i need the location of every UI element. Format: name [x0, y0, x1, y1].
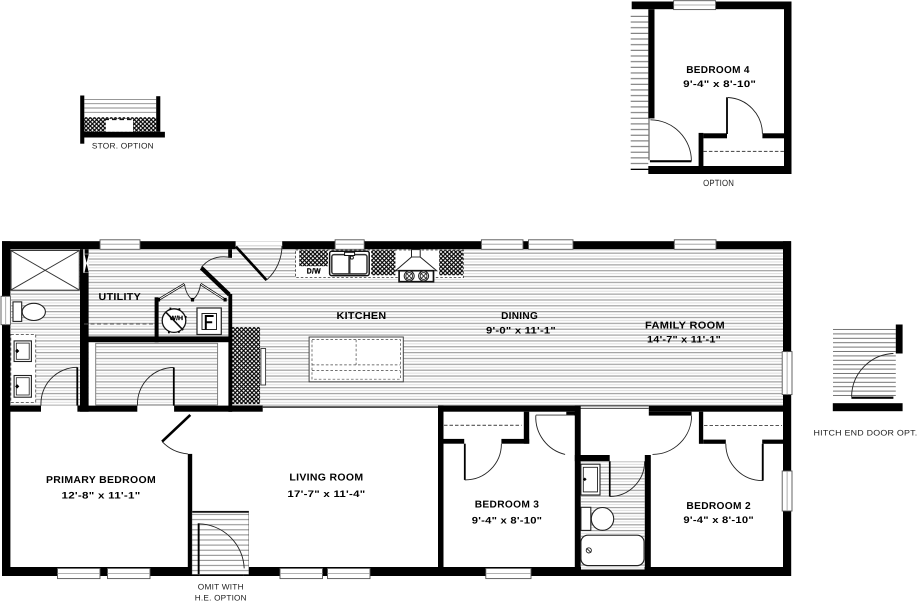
- svg-text:KITCHEN: KITCHEN: [337, 311, 387, 322]
- svg-text:BEDROOM 3: BEDROOM 3: [475, 499, 540, 510]
- svg-text:9'-0" x 11'-1": 9'-0" x 11'-1": [486, 325, 556, 336]
- svg-text:OPTION: OPTION: [703, 178, 734, 188]
- svg-text:UTILITY: UTILITY: [99, 292, 142, 303]
- svg-text:STOR. OPTION: STOR. OPTION: [92, 141, 154, 150]
- svg-text:H.E. OPTION: H.E. OPTION: [195, 593, 247, 601]
- svg-text:W/H: W/H: [170, 315, 184, 322]
- svg-text:9'-4" x 8'-10": 9'-4" x 8'-10": [472, 515, 543, 526]
- svg-text:12'-8" x 11'-1": 12'-8" x 11'-1": [62, 490, 141, 501]
- svg-text:BEDROOM 4: BEDROOM 4: [686, 65, 750, 76]
- svg-text:HITCH END DOOR OPT.: HITCH END DOOR OPT.: [814, 429, 918, 438]
- svg-text:D/W: D/W: [307, 267, 322, 276]
- svg-text:OMIT WITH: OMIT WITH: [198, 583, 244, 592]
- svg-text:LIVING ROOM: LIVING ROOM: [289, 472, 363, 483]
- svg-text:PRIMARY BEDROOM: PRIMARY BEDROOM: [46, 475, 156, 486]
- svg-text:9'-4" x 8'-10": 9'-4" x 8'-10": [683, 515, 754, 526]
- svg-text:9'-4" x 8'-10": 9'-4" x 8'-10": [683, 79, 756, 90]
- svg-text:17'-7" x 11'-4": 17'-7" x 11'-4": [287, 489, 365, 500]
- svg-text:FAMILY ROOM: FAMILY ROOM: [645, 321, 725, 332]
- svg-text:BEDROOM 2: BEDROOM 2: [686, 501, 751, 512]
- svg-text:DINING: DINING: [501, 311, 538, 322]
- svg-text:14'-7" x 11'-1": 14'-7" x 11'-1": [647, 335, 721, 346]
